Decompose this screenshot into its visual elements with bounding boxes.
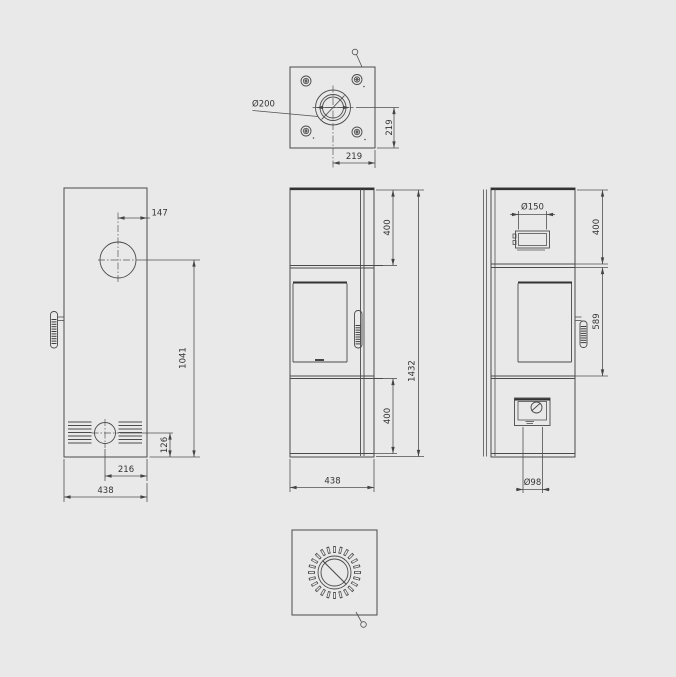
dim-back-flue-offset: 147 [118,209,168,219]
top-view: Ø200 219 219 [252,49,399,168]
dim-side-top-section: 400 [575,190,608,264]
dim-label-front-bottom-section: 400 [383,408,393,424]
front-view: 400 400 1432 438 [290,188,424,492]
door-glass-side [518,283,572,363]
dim-side-collar-diameter: Ø150 [510,202,555,230]
dim-label-back-vent-height: 126 [160,437,170,453]
back-view: 147 1041 126 216 438 [51,188,201,502]
dim-flue-diameter: Ø200 [252,99,350,117]
dim-label-side-collar-diameter: Ø150 [521,202,544,213]
dim-top-offset-horizontal: 219 [333,150,375,168]
flue-outlet-back-icon [98,213,138,285]
bottom-view [292,530,377,627]
air-intake-side-icon [515,398,551,426]
dim-label-front-top-section: 400 [383,219,393,235]
dim-label-back-flue-offset: 147 [152,209,168,219]
dim-back-vent-offset: 216 [105,449,147,481]
dim-label-flue-diameter: Ø200 [252,99,275,110]
door-handle-side [575,317,587,348]
dim-label-top-offset-vertical: 219 [385,119,395,135]
dim-label-side-door-section: 589 [592,313,602,329]
dim-back-width: 438 [64,459,147,502]
dim-label-front-width: 438 [324,477,340,487]
door-glass-front [293,283,347,363]
reference-balloon-icon [356,612,366,627]
dim-top-offset-vertical: 219 [356,108,399,149]
reference-balloon-icon [352,49,362,67]
dim-label-top-offset-horizontal: 219 [346,152,362,162]
flue-collar-side-icon [513,231,550,250]
dim-label-side-top-section: 400 [592,219,602,235]
technical-drawing: Ø200 219 219 147 [0,0,676,677]
dim-side-door-section: 589 [575,268,608,377]
dim-label-side-air-inlet-diameter: Ø98 [524,477,542,488]
dim-label-back-width: 438 [97,486,113,496]
air-intake-rosette-icon [308,546,361,599]
dim-label-front-total-height: 1432 [408,360,418,382]
side-view: Ø150 [484,188,609,493]
dim-label-back-vent-offset: 216 [118,465,134,475]
dim-label-back-flue-height: 1041 [179,347,189,369]
dim-front-width: 438 [290,459,374,492]
dim-front-top-section: 400 [376,190,424,266]
air-inlet-back-icon [92,419,120,448]
door-handle-back [51,312,65,349]
dim-front-bottom-section: 400 [374,379,397,454]
dim-side-air-inlet-diameter: Ø98 [516,427,550,493]
